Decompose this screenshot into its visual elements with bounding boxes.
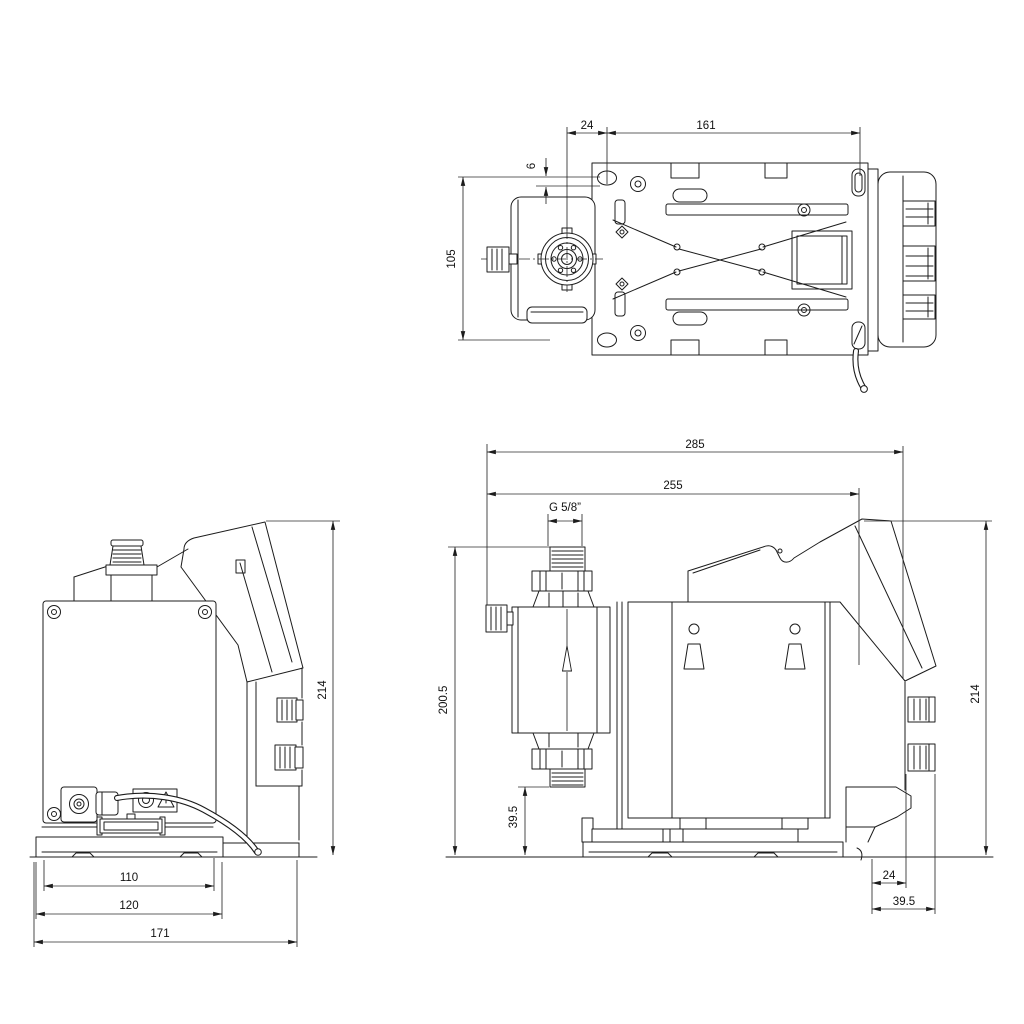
dim-top-161: 161 xyxy=(696,120,715,132)
cable-gland-knob xyxy=(903,201,935,226)
cable-gland-knob xyxy=(277,698,303,722)
base-plate xyxy=(583,842,843,857)
foot-bracket xyxy=(846,787,911,860)
cable-gland-knob xyxy=(275,745,303,770)
dim-back-171: 171 xyxy=(150,928,169,940)
dim-top-105: 105 xyxy=(446,249,458,268)
dim-side-200-5: 200.5 xyxy=(438,686,450,715)
power-cable xyxy=(855,351,867,392)
suction-discharge-port xyxy=(532,733,594,787)
pump-top-body xyxy=(74,540,188,601)
cable-gland-knob xyxy=(908,744,935,771)
dim-side-214: 214 xyxy=(970,684,982,704)
filler-cap xyxy=(110,540,144,565)
vent-knob xyxy=(486,605,513,632)
dim-side-24: 24 xyxy=(883,870,896,882)
dimensional-drawing-page: 24 161 6 105 xyxy=(0,0,1024,1024)
technical-drawing: 24 161 6 105 xyxy=(0,0,1024,1024)
dim-side-39-5-port: 39.5 xyxy=(508,806,520,828)
mounting-plate xyxy=(592,163,868,355)
side-panel xyxy=(247,668,303,840)
dim-side-285: 285 xyxy=(685,439,704,451)
cable-gland-knob xyxy=(903,246,935,281)
back-view: 214 110 120 171 xyxy=(30,521,340,947)
dim-back-110: 110 xyxy=(120,872,138,884)
control-housing-end xyxy=(868,169,936,351)
dim-top-24: 24 xyxy=(581,120,594,132)
base-plate xyxy=(30,837,317,857)
dim-side-39-5-gland: 39.5 xyxy=(893,896,915,908)
top-view: 24 161 6 105 xyxy=(446,120,936,392)
cable-gland-knob xyxy=(908,697,935,722)
dim-side-thread: G 5/8” xyxy=(549,502,581,514)
dim-top-6: 6 xyxy=(526,163,538,169)
dim-side-255: 255 xyxy=(663,480,682,492)
dim-back-214: 214 xyxy=(317,680,329,700)
cable-gland-knob xyxy=(903,295,935,319)
pump-body xyxy=(582,602,830,842)
dim-back-120: 120 xyxy=(119,900,138,912)
gland-panel xyxy=(846,682,935,860)
dosing-head-side xyxy=(486,547,610,787)
side-view: 285 255 G 5/8” 200.5 39.5 214 24 39.5 xyxy=(438,439,993,914)
suction-discharge-port xyxy=(532,547,594,607)
